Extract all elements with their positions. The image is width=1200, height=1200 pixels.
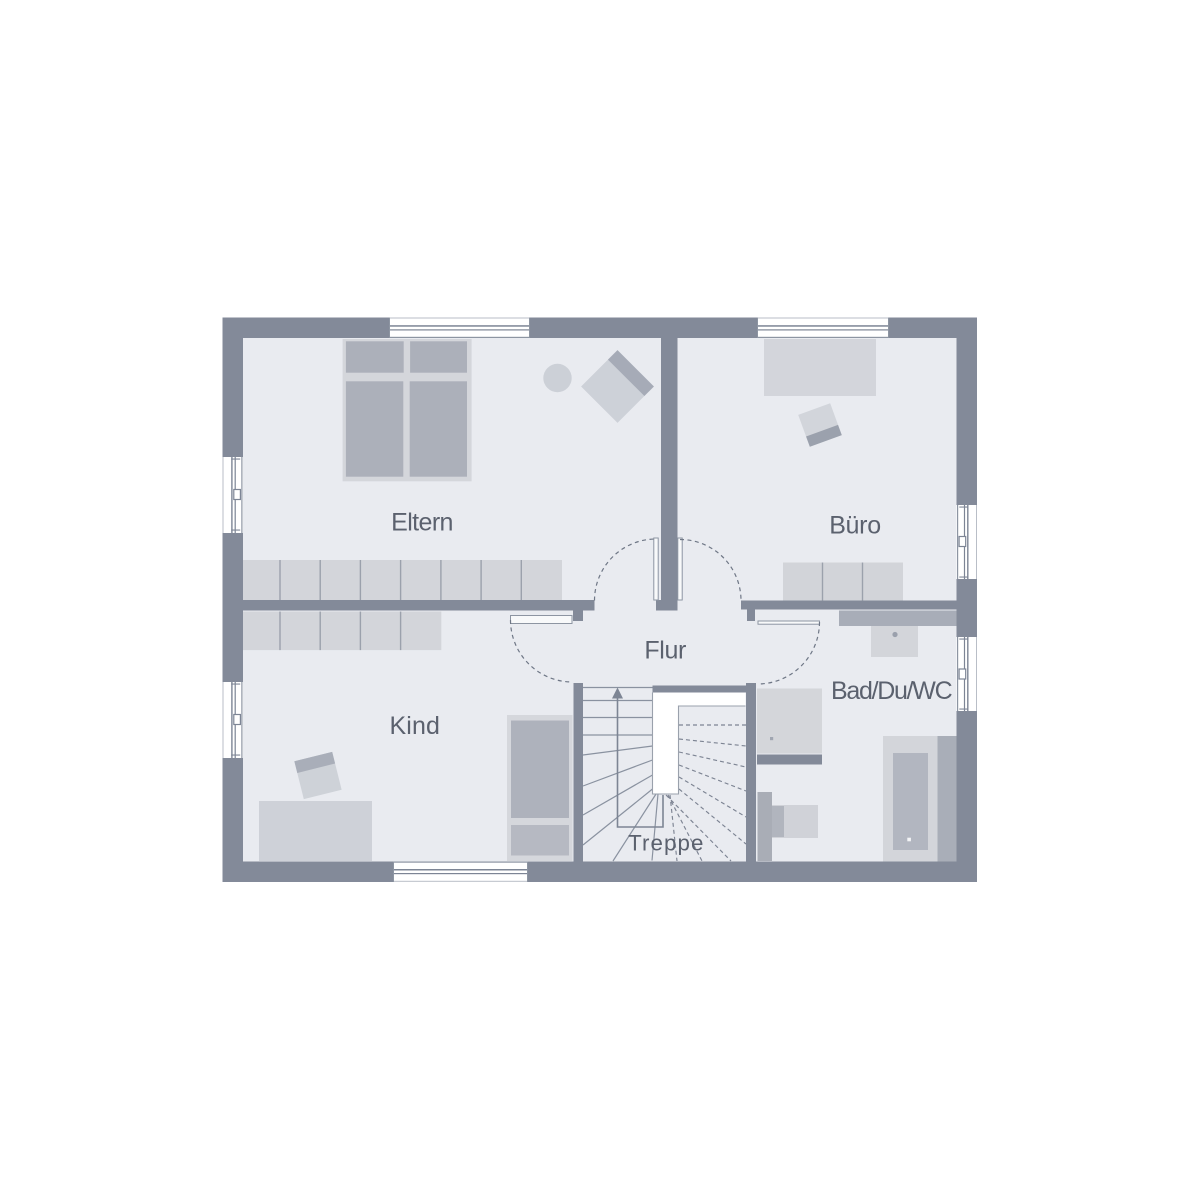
svg-text:Treppe: Treppe — [628, 830, 704, 855]
svg-text:Flur: Flur — [644, 637, 686, 665]
svg-text:Kind: Kind — [389, 712, 440, 740]
svg-text:Büro: Büro — [829, 512, 881, 540]
svg-text:Eltern: Eltern — [391, 509, 453, 537]
svg-text:Bad/Du/WC: Bad/Du/WC — [831, 677, 953, 705]
